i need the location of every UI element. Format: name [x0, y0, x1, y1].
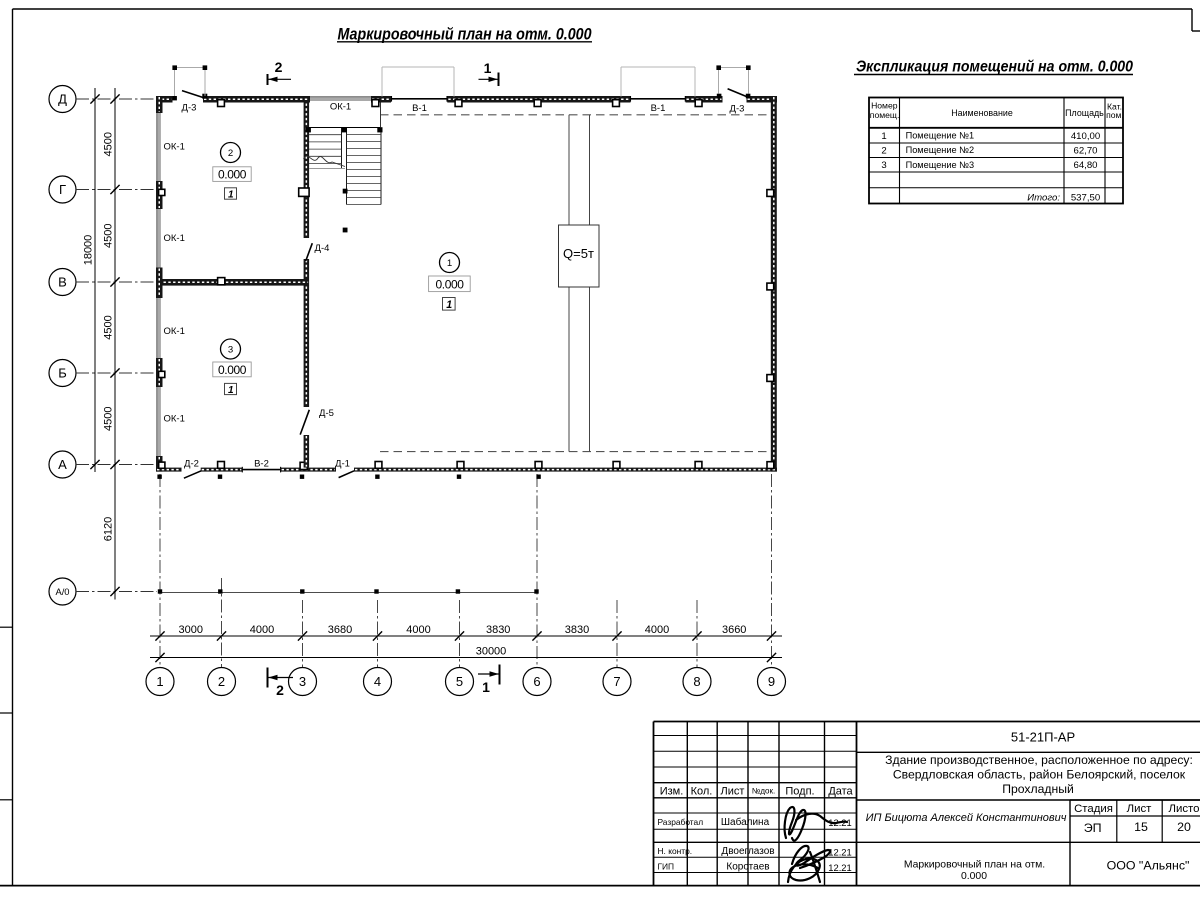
svg-text:Площадь: Площадь	[1065, 108, 1104, 118]
svg-text:0.000: 0.000	[435, 277, 464, 291]
svg-text:6120: 6120	[103, 517, 115, 541]
svg-text:Свердловская область, район Бе: Свердловская область, район Белоярский, …	[893, 768, 1186, 782]
svg-text:В: В	[58, 275, 67, 290]
svg-text:2: 2	[275, 59, 283, 75]
svg-text:3000: 3000	[179, 624, 203, 636]
svg-text:№док.: №док.	[752, 787, 775, 796]
svg-text:3830: 3830	[565, 624, 589, 636]
svg-text:ОК-1: ОК-1	[164, 326, 185, 337]
svg-text:4500: 4500	[103, 406, 115, 430]
svg-text:1: 1	[156, 674, 163, 689]
svg-text:помещ.: помещ.	[870, 110, 900, 120]
svg-text:В-1: В-1	[412, 103, 427, 114]
svg-text:20: 20	[1177, 820, 1191, 834]
svg-text:Дата: Дата	[828, 785, 853, 797]
svg-text:Подп.: Подп.	[785, 785, 814, 797]
svg-text:Лист: Лист	[1127, 803, 1153, 815]
svg-text:4000: 4000	[645, 624, 669, 636]
svg-text:15: 15	[1134, 820, 1148, 834]
svg-text:0.000: 0.000	[218, 168, 247, 182]
svg-text:Д-3: Д-3	[182, 103, 197, 114]
svg-text:Д-2: Д-2	[184, 459, 199, 470]
svg-text:Д-3: Д-3	[730, 104, 745, 115]
svg-text:6: 6	[533, 674, 540, 689]
svg-text:2: 2	[276, 682, 284, 698]
svg-text:Помещение №1: Помещение №1	[906, 131, 975, 141]
svg-text:Маркировочный план на отм.: Маркировочный план на отм.	[904, 859, 1045, 870]
svg-text:Изм.: Изм.	[660, 785, 684, 797]
svg-text:410,00: 410,00	[1071, 131, 1100, 142]
svg-text:Листов: Листов	[1168, 803, 1200, 815]
svg-text:4500: 4500	[103, 315, 115, 339]
svg-text:Здание производственное, распо: Здание производственное, расположенное п…	[885, 753, 1193, 767]
svg-text:64,80: 64,80	[1073, 160, 1097, 171]
svg-text:Б: Б	[58, 366, 67, 381]
svg-text:3830: 3830	[486, 624, 510, 636]
svg-text:Д: Д	[58, 92, 67, 107]
svg-text:4: 4	[374, 674, 381, 689]
svg-text:8: 8	[693, 674, 700, 689]
svg-text:Стадия: Стадия	[1074, 803, 1113, 815]
svg-text:Коротаев: Коротаев	[726, 861, 769, 872]
svg-text:2: 2	[881, 146, 886, 157]
svg-text:3680: 3680	[328, 624, 352, 636]
svg-text:Кол.: Кол.	[691, 785, 713, 797]
svg-text:1: 1	[484, 60, 492, 76]
svg-text:51-21П-АР: 51-21П-АР	[1011, 730, 1075, 745]
svg-text:4000: 4000	[406, 624, 430, 636]
svg-text:Шабалина: Шабалина	[721, 816, 770, 828]
svg-text:ОК-1: ОК-1	[164, 142, 185, 153]
svg-text:62,70: 62,70	[1073, 146, 1097, 157]
svg-text:18000: 18000	[83, 235, 95, 266]
svg-text:1: 1	[482, 679, 490, 695]
svg-text:4500: 4500	[103, 223, 115, 247]
svg-text:Н. контр.: Н. контр.	[658, 846, 693, 856]
svg-text:ЭП: ЭП	[1084, 821, 1102, 835]
svg-text:А/0: А/0	[55, 586, 69, 597]
svg-text:В-1: В-1	[651, 103, 666, 114]
svg-text:ОК-1: ОК-1	[330, 102, 351, 113]
svg-text:1: 1	[228, 385, 234, 396]
svg-text:3: 3	[299, 674, 306, 689]
svg-text:1: 1	[228, 189, 234, 200]
svg-text:Помещение №3: Помещение №3	[906, 160, 975, 170]
svg-text:Q=5т: Q=5т	[563, 246, 594, 261]
svg-text:2: 2	[228, 148, 233, 159]
svg-text:4000: 4000	[250, 624, 274, 636]
svg-text:1: 1	[447, 258, 452, 269]
svg-text:7: 7	[613, 674, 620, 689]
svg-text:9: 9	[768, 674, 775, 689]
svg-text:Наименование: Наименование	[951, 108, 1013, 118]
svg-text:Экспликация помещений на отм.: Экспликация помещений на отм. 0.000	[856, 58, 1133, 75]
svg-text:ИП Бицюта Алексей Константинов: ИП Бицюта Алексей Константинович	[866, 812, 1067, 824]
svg-text:537,50: 537,50	[1071, 193, 1100, 204]
svg-text:5: 5	[456, 674, 463, 689]
svg-text:4500: 4500	[103, 132, 115, 156]
svg-text:Итого:: Итого:	[1027, 193, 1060, 204]
svg-text:Д-1: Д-1	[335, 459, 350, 470]
svg-text:12.21: 12.21	[828, 862, 851, 873]
svg-text:Лист: Лист	[721, 785, 745, 797]
svg-text:3660: 3660	[722, 624, 746, 636]
svg-text:Д-4: Д-4	[315, 243, 330, 254]
svg-text:3: 3	[881, 160, 886, 171]
svg-text:12.21: 12.21	[828, 847, 851, 858]
svg-text:В-2: В-2	[254, 459, 269, 470]
svg-text:0.000: 0.000	[218, 363, 247, 377]
svg-text:Г: Г	[59, 182, 66, 197]
svg-text:ООО "Альянс": ООО "Альянс"	[1107, 858, 1190, 872]
svg-text:Прохладный: Прохладный	[1002, 782, 1074, 796]
svg-text:А: А	[58, 457, 67, 472]
svg-text:ОК-1: ОК-1	[164, 414, 185, 425]
svg-text:2: 2	[218, 674, 225, 689]
svg-text:30000: 30000	[476, 646, 507, 658]
svg-text:1: 1	[446, 299, 452, 311]
svg-text:Помещение №2: Помещение №2	[906, 145, 975, 155]
svg-text:1: 1	[881, 131, 886, 142]
svg-text:3: 3	[228, 345, 233, 356]
svg-text:ГИП: ГИП	[658, 862, 675, 872]
svg-text:Маркировочный план на отм. 0.0: Маркировочный план на отм. 0.000	[338, 24, 592, 43]
svg-text:Д-5: Д-5	[319, 408, 334, 419]
svg-text:Двоеглазов: Двоеглазов	[721, 846, 774, 857]
svg-text:Разработал: Разработал	[658, 817, 704, 827]
svg-text:пом.: пом.	[1106, 110, 1124, 120]
svg-text:ОК-1: ОК-1	[164, 233, 185, 244]
svg-text:0.000: 0.000	[961, 871, 987, 882]
